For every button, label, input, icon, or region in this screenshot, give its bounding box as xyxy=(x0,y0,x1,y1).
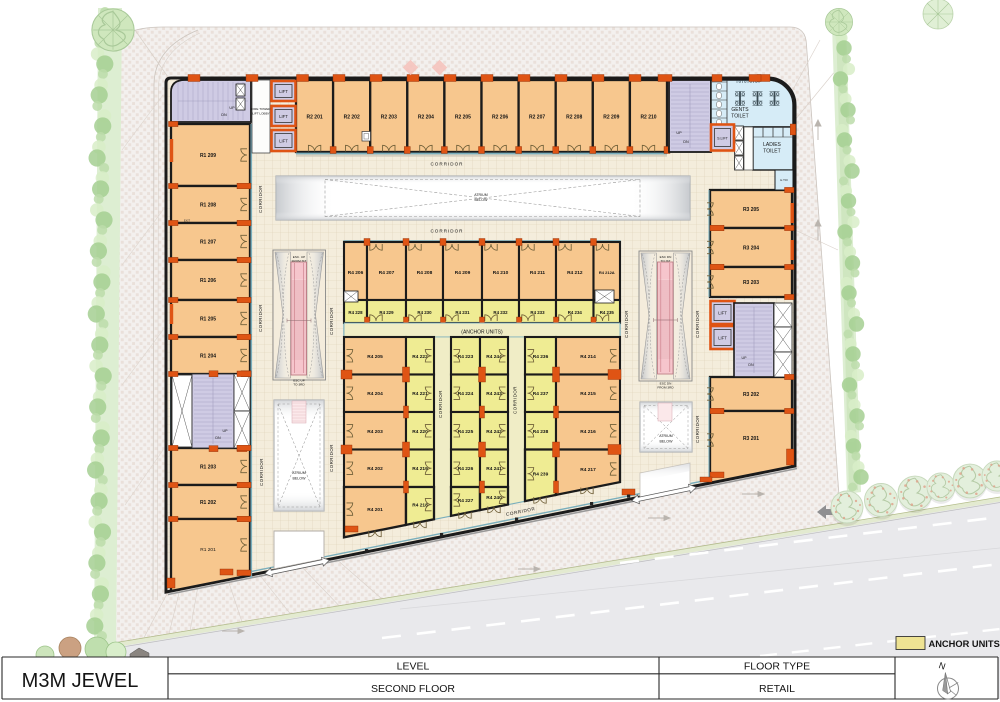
svg-text:FIRE TOWER: FIRE TOWER xyxy=(251,107,271,111)
svg-text:R2 205: R2 205 xyxy=(455,115,471,121)
svg-text:R4 214: R4 214 xyxy=(580,354,596,360)
svg-text:R4 211: R4 211 xyxy=(530,270,546,276)
svg-text:CORRIDOR: CORRIDOR xyxy=(329,307,334,335)
svg-text:R4 231: R4 231 xyxy=(455,310,470,315)
svg-text:R4 215: R4 215 xyxy=(580,391,596,397)
svg-text:BELOW: BELOW xyxy=(475,198,489,202)
svg-text:R1 201: R1 201 xyxy=(200,547,216,553)
svg-text:R1 207: R1 207 xyxy=(200,240,216,246)
svg-text:CORRIDOR: CORRIDOR xyxy=(259,458,264,486)
svg-text:GENTS: GENTS xyxy=(731,107,749,113)
svg-text:DN: DN xyxy=(221,113,227,117)
svg-text:R4 224: R4 224 xyxy=(458,391,474,397)
svg-text:CORRIDOR: CORRIDOR xyxy=(430,229,463,234)
svg-text:R4 216: R4 216 xyxy=(580,429,596,435)
svg-text:R3 205: R3 205 xyxy=(743,207,759,213)
svg-text:R4 210: R4 210 xyxy=(493,270,509,276)
svg-text:SECOND FLOOR: SECOND FLOOR xyxy=(371,683,455,695)
svg-text:TOILET: TOILET xyxy=(731,114,748,120)
svg-text:R1 202: R1 202 xyxy=(200,500,216,506)
svg-text:R1 209: R1 209 xyxy=(200,153,216,159)
svg-text:UP: UP xyxy=(229,106,235,110)
svg-text:R4 206: R4 206 xyxy=(348,270,364,276)
svg-text:EXIT: EXIT xyxy=(184,219,191,223)
svg-text:R4 207: R4 207 xyxy=(379,270,395,276)
svg-text:R4 202: R4 202 xyxy=(367,466,383,472)
svg-text:H.TOI: H.TOI xyxy=(780,178,788,182)
svg-text:R4 226: R4 226 xyxy=(458,466,474,472)
svg-text:R4 232: R4 232 xyxy=(493,310,508,315)
svg-text:BELOW: BELOW xyxy=(293,477,307,481)
svg-text:R4 204: R4 204 xyxy=(367,391,383,397)
svg-text:LIFT LOBBY: LIFT LOBBY xyxy=(252,112,269,116)
svg-text:R2 203: R2 203 xyxy=(381,115,397,121)
svg-text:R4 217: R4 217 xyxy=(580,467,596,473)
svg-text:R4 235: R4 235 xyxy=(600,310,615,315)
svg-text:R2 209: R2 209 xyxy=(603,115,619,121)
svg-text:ATRIUM: ATRIUM xyxy=(292,471,306,475)
svg-text:R3 204: R3 204 xyxy=(743,246,759,252)
svg-text:R4 212: R4 212 xyxy=(567,270,583,276)
svg-text:CORRIDOR: CORRIDOR xyxy=(695,310,700,338)
svg-text:S.LIFT: S.LIFT xyxy=(717,137,729,141)
svg-text:BELOW: BELOW xyxy=(660,440,674,444)
svg-text:TOILET: TOILET xyxy=(763,149,780,155)
svg-text:CORRIDOR: CORRIDOR xyxy=(695,415,700,443)
svg-text:CORRIDOR: CORRIDOR xyxy=(513,386,518,414)
svg-text:LIFT: LIFT xyxy=(279,89,288,94)
svg-text:LIFT: LIFT xyxy=(279,138,288,143)
svg-text:R2 208: R2 208 xyxy=(566,115,582,121)
svg-text:R4 203: R4 203 xyxy=(367,429,383,435)
svg-text:R4 201: R4 201 xyxy=(367,507,383,513)
svg-text:R2 207: R2 207 xyxy=(529,115,545,121)
svg-text:R1 205: R1 205 xyxy=(200,317,216,323)
svg-text:R3 201: R3 201 xyxy=(743,436,759,442)
svg-text:FROM IST: FROM IST xyxy=(292,259,307,263)
svg-text:LIFT: LIFT xyxy=(279,114,288,119)
svg-text:R2 201: R2 201 xyxy=(307,115,323,121)
svg-text:R4 205: R4 205 xyxy=(367,354,383,360)
svg-text:CORRIDOR: CORRIDOR xyxy=(258,185,263,213)
svg-text:R1 203: R1 203 xyxy=(200,465,216,471)
svg-text:LIFT: LIFT xyxy=(718,310,727,315)
svg-text:R3 203: R3 203 xyxy=(743,280,759,286)
svg-text:R4 228: R4 228 xyxy=(348,310,363,315)
svg-text:R1 208: R1 208 xyxy=(200,203,216,209)
svg-text:(ANCHOR UNITS): (ANCHOR UNITS) xyxy=(461,330,503,336)
svg-text:DN: DN xyxy=(215,436,221,440)
svg-text:M3M JEWEL: M3M JEWEL xyxy=(22,670,139,692)
svg-text:R1 206: R1 206 xyxy=(200,278,216,284)
svg-text:CORRIDOR: CORRIDOR xyxy=(438,390,443,418)
svg-text:R4 225: R4 225 xyxy=(458,429,474,435)
svg-text:TO IST: TO IST xyxy=(661,259,671,263)
svg-text:ANCHOR UNITS: ANCHOR UNITS xyxy=(929,639,1000,649)
svg-text:R4 230: R4 230 xyxy=(417,310,432,315)
svg-text:R4 227: R4 227 xyxy=(458,498,474,504)
svg-text:R4 237: R4 237 xyxy=(533,391,549,397)
svg-text:R4 239: R4 239 xyxy=(533,472,549,478)
svg-text:FROM 3RD: FROM 3RD xyxy=(657,385,674,389)
svg-text:R4 208: R4 208 xyxy=(417,270,433,276)
svg-text:R4 234: R4 234 xyxy=(568,310,583,315)
svg-text:R1 204: R1 204 xyxy=(200,354,216,360)
svg-text:R2 210: R2 210 xyxy=(640,115,656,121)
svg-text:DN: DN xyxy=(683,140,689,144)
svg-text:TO 3RD: TO 3RD xyxy=(293,382,305,386)
svg-text:R4 209: R4 209 xyxy=(455,270,471,276)
svg-text:UP: UP xyxy=(742,356,748,360)
svg-text:R2 204: R2 204 xyxy=(418,115,434,121)
svg-text:R3 202: R3 202 xyxy=(743,392,759,398)
svg-text:R4 236: R4 236 xyxy=(533,354,549,360)
svg-text:LADIES: LADIES xyxy=(763,142,781,148)
svg-text:R4 212A: R4 212A xyxy=(599,270,615,275)
svg-text:R2 202: R2 202 xyxy=(344,115,360,121)
svg-text:FLOOR TYPE: FLOOR TYPE xyxy=(744,661,810,673)
svg-text:R4 223: R4 223 xyxy=(458,354,474,360)
svg-text:UP: UP xyxy=(223,429,229,433)
svg-text:CORRIDOR: CORRIDOR xyxy=(624,310,629,338)
svg-text:DN: DN xyxy=(748,363,754,367)
svg-text:R4 233: R4 233 xyxy=(530,310,545,315)
svg-text:CORRIDOR: CORRIDOR xyxy=(430,162,463,167)
svg-text:R4 238: R4 238 xyxy=(533,429,549,435)
svg-text:R4 229: R4 229 xyxy=(379,310,394,315)
svg-text:LEVEL: LEVEL xyxy=(397,661,430,673)
svg-text:ATRIUM: ATRIUM xyxy=(474,193,488,197)
svg-text:UP: UP xyxy=(676,131,682,135)
svg-text:CORRIDOR: CORRIDOR xyxy=(329,444,334,472)
svg-text:ATRIUM: ATRIUM xyxy=(659,434,673,438)
svg-text:R2 206: R2 206 xyxy=(492,115,508,121)
svg-text:CORRIDOR: CORRIDOR xyxy=(258,304,263,332)
svg-text:LIFT: LIFT xyxy=(718,335,727,340)
svg-text:RETAIL: RETAIL xyxy=(759,683,795,695)
